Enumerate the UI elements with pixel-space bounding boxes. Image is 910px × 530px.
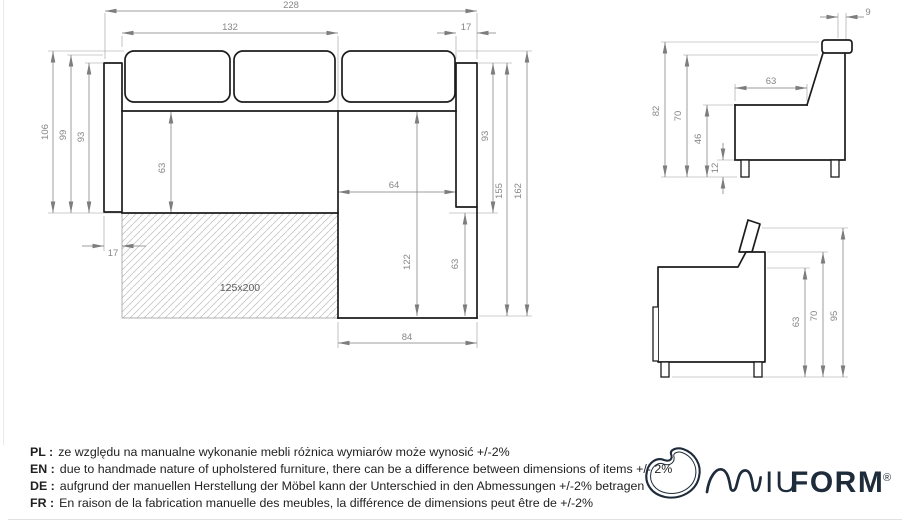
footer-divider: [8, 519, 902, 520]
side-view-back: 9 82 70 46 12 63: [651, 7, 871, 194]
logo-m-wave: [707, 469, 761, 492]
right-armrest: [456, 63, 477, 207]
side-view-front: 63 70 95: [653, 220, 848, 377]
lang-label-de: DE :: [30, 479, 55, 493]
miuform-logo: IU FORM ®: [643, 441, 903, 509]
registered-trademark-icon: ®: [883, 472, 891, 484]
dim-total-width: 228: [283, 0, 299, 11]
bean-icon: [646, 448, 699, 497]
disclaimer-text-fr: En raison de la fabrication manuelle des…: [59, 496, 593, 510]
sidefront-dimension-labels: 63 70 95: [791, 311, 840, 328]
sidefront-body: [658, 252, 765, 362]
sideback-leg-right: [831, 160, 839, 177]
sidefront-outline: [653, 220, 765, 377]
sideback-backrest-slope: [807, 53, 823, 105]
disclaimer-notes: PL :ze względu na manualne wykonanie meb…: [30, 444, 672, 512]
bed-size-label: 125x200: [220, 282, 260, 294]
sideback-headrest: [822, 40, 852, 53]
lang-label-fr: FR :: [30, 496, 54, 510]
sidefront-leg-right: [754, 362, 762, 377]
disclaimer-row-fr: FR :En raison de la fabrication manuelle…: [30, 495, 672, 512]
dim-seat-depth: 63: [157, 163, 168, 174]
dim-seat-width: 132: [222, 22, 238, 33]
disclaimer-row-pl: PL :ze względu na manualne wykonanie meb…: [30, 444, 672, 461]
dim-chaise-inner-width: 64: [389, 180, 400, 191]
disclaimer-row-en: EN :due to handmade nature of upholstere…: [30, 461, 672, 478]
back-cushion-3: [342, 51, 455, 102]
dim-side-seat-depth: 63: [766, 76, 777, 87]
back-cushion-2: [234, 51, 335, 102]
sidefront-leg-left: [661, 362, 669, 377]
dim-total-length: 162: [513, 183, 524, 199]
dim-length-to-armrest: 155: [494, 183, 505, 199]
dim-armrest-width-right: 17: [461, 22, 472, 33]
sideback-leg-left: [741, 160, 749, 177]
dim-total-height-back: 82: [651, 106, 662, 117]
lang-label-pl: PL :: [30, 445, 53, 459]
dim-chaise-width: 84: [402, 332, 413, 343]
sideback-body: [735, 53, 845, 160]
technical-drawing: 228 132 17 106 99 93 63 17 64 122 63 84 …: [0, 0, 910, 438]
dim-headrest-depth: 9: [865, 7, 870, 18]
sidefront-side-seam: [653, 307, 658, 361]
spec-sheet: 228 132 17 106 99 93 63 17 64 122 63 84 …: [0, 0, 910, 530]
dim-armrest-width-left: 17: [108, 248, 119, 259]
dim-chaise-length: 122: [402, 254, 413, 270]
dim-depth-mid: 99: [58, 130, 69, 141]
dim-seat-height: 46: [693, 134, 704, 145]
dim-armrest-height: 63: [791, 317, 802, 328]
plan-view: 228 132 17 106 99 93 63 17 64 122 63 84 …: [40, 0, 532, 348]
disclaimer-text-pl: ze względu na manualne wykonanie mebli r…: [58, 445, 509, 459]
dim-depth-frame-right: 93: [480, 131, 491, 142]
sideback-outline: [735, 40, 852, 177]
logo-letters-bold: FORM: [790, 466, 884, 499]
dim-depth-with-cushions: 106: [40, 124, 51, 140]
dim-chaise-front-depth: 63: [450, 259, 461, 270]
dim-backrest-height-front: 70: [809, 311, 820, 322]
bed-area: [122, 213, 338, 318]
disclaimer-row-de: DE :aufgrund der manuellen Herstellung d…: [30, 478, 672, 495]
dim-leg-height: 12: [710, 163, 721, 174]
left-armrest: [104, 63, 122, 212]
disclaimer-text-en: due to handmade nature of upholstered fu…: [60, 462, 672, 476]
dim-depth-frame-left: 93: [76, 132, 87, 143]
dim-backrest-height-back: 70: [673, 111, 684, 122]
sideback-extension-lines: [661, 13, 846, 177]
back-cushion-1: [125, 51, 230, 102]
disclaimer-text-de: aufgrund der manuellen Herstellung der M…: [60, 479, 644, 493]
dim-total-height-front: 95: [829, 311, 840, 322]
lang-label-en: EN :: [30, 462, 55, 476]
sidefront-tilted-headrest: [739, 220, 760, 252]
sidefront-dimension-lines: [805, 228, 843, 377]
